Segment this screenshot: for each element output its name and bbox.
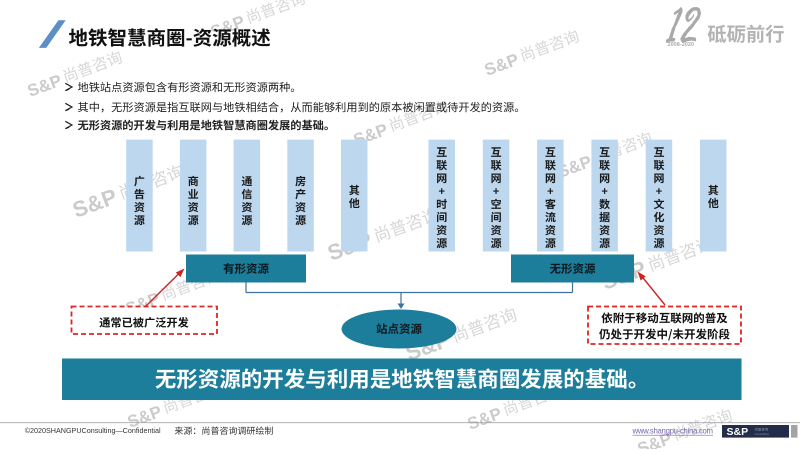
svg-text:Consulting: Consulting <box>755 432 770 436</box>
svg-text:2008-2020: 2008-2020 <box>668 42 695 48</box>
svg-text:S&P: S&P <box>482 50 521 80</box>
svg-text:S&P: S&P <box>69 184 120 223</box>
svg-text:S&P: S&P <box>465 404 504 434</box>
svg-text:©2020SHANGPUConsulting—Confide: ©2020SHANGPUConsulting—Confidential <box>25 426 161 435</box>
svg-text:www.shangpu-china.com: www.shangpu-china.com <box>632 427 714 436</box>
svg-text:S&P: S&P <box>727 426 749 438</box>
svg-text:S&P: S&P <box>25 71 64 101</box>
